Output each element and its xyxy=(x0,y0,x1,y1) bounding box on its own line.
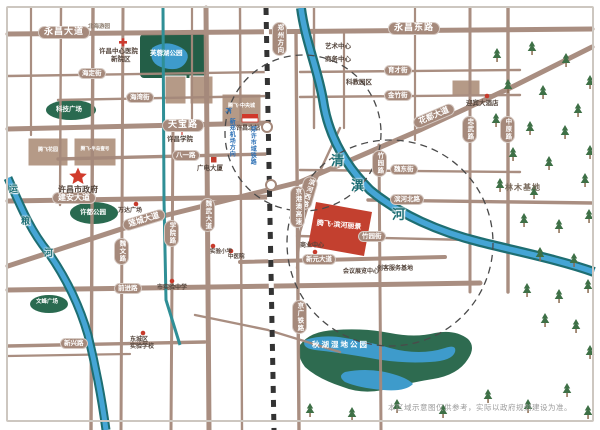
poi-wanda-plaza: 万达广场 xyxy=(118,208,142,214)
road-label-qianjin: 前进路 xyxy=(114,283,142,294)
river-name-west-char1: 运 xyxy=(9,186,18,195)
poi-maker-base: 创客服务基地 xyxy=(377,266,413,272)
park-label-furong-lake: 芙蓉湖公园 xyxy=(150,50,183,57)
road-label-zhuyuan-road: 竹园路 xyxy=(372,150,387,177)
road-label-zhongyuan: 中原路 xyxy=(500,116,515,143)
river-name-west-char2: 粮 xyxy=(21,218,30,227)
road-label-jingguang-railway: 京广铁路 xyxy=(292,300,307,334)
road-label-weiwen: 魏文路 xyxy=(114,238,129,265)
park-label-wenfeng-square: 文峰广场 xyxy=(36,300,58,306)
road-label-tianbao: 天宝路 xyxy=(162,119,204,132)
poi-dot-icon xyxy=(134,202,139,207)
park-label-xudu-park: 许都公园 xyxy=(80,209,106,216)
road-label-haiding: 海定街 xyxy=(78,68,106,79)
road-label-jinggangao-expressway: 京港澳高速 xyxy=(290,186,305,228)
road-label-jinzhu: 金竹街 xyxy=(384,90,412,101)
poi-broadcast-tower: 广电大厦 xyxy=(197,165,223,172)
road-label-haiwan: 海湾街 xyxy=(126,92,154,103)
road-label-xinxing: 新兴路 xyxy=(60,338,88,349)
poi-hospital-line2: 新院区 xyxy=(111,56,131,63)
poi-dot-icon xyxy=(141,331,146,336)
poi-exhibition-center: 会议展览中心 xyxy=(343,269,379,275)
river-name-east-char2: 潩 xyxy=(351,180,364,194)
railway-line xyxy=(266,8,274,430)
star-icon xyxy=(69,168,87,185)
poi-kejiao-park: 科教园区 xyxy=(346,79,372,86)
road-label-xinyuan: 新元大道 xyxy=(302,254,336,265)
poi-hotel: 迎宾大酒店 xyxy=(466,100,499,107)
block-label-tengfei-bandao: 腾飞·半岛壹号 xyxy=(75,148,115,153)
road-label-binhe-north: 滨河北路 xyxy=(390,194,424,205)
road-label-weidong: 魏东街 xyxy=(390,164,418,175)
park-label-keji-square: 科技广场 xyxy=(56,106,82,113)
poi-shopping-center: 商业中心 xyxy=(300,243,324,249)
poi-biz-center: 商务中心 xyxy=(325,56,351,63)
direction-label-zhengzhou: 郑州方向 xyxy=(272,22,287,56)
poi-experimental-middle-school: 市实验中学 xyxy=(157,285,187,291)
river-name-east-char3: 河 xyxy=(392,209,405,223)
poi-dongcheng-school-line2: 实验学校 xyxy=(130,344,154,350)
road-label-zhuyuan-street: 竹园街 xyxy=(358,231,386,242)
poi-xuchang-college: 许昌学院 xyxy=(167,136,193,143)
poi-art-center: 艺术中心 xyxy=(325,43,351,50)
poi-dot-icon xyxy=(170,279,175,284)
poi-north-station: 许昌北站 xyxy=(236,126,260,132)
toll-gate-icon xyxy=(242,114,258,122)
river-name-east-char1: 清 xyxy=(331,155,344,169)
road-label-xueyuan: 学院路 xyxy=(164,220,179,247)
poi-beihai-garden: 北海游园 xyxy=(88,25,110,31)
river-name-west-char3: 河 xyxy=(44,250,53,259)
poi-dot-icon xyxy=(211,244,216,249)
road-label-yucai: 育才街 xyxy=(384,65,412,76)
block-label-tengfei-garden: 腾飞花园 xyxy=(30,148,66,153)
disclaimer-text: 本区域示意图仅供参考，实际以政府规划建设为准。 xyxy=(388,404,572,412)
road-label-bayi: 八一路 xyxy=(172,150,200,161)
transit-label-airport: 新郑机场方向 xyxy=(228,118,234,157)
map-canvas: 永昌大道 永昌东路 海定街 海湾街 育才街 金竹街 天宝路 八一路 魏东街 建安… xyxy=(0,0,600,430)
poi-city-government: 许昌市政府 xyxy=(58,186,98,194)
area-label-forest-base: 林木基地 xyxy=(505,184,541,192)
poi-dot-icon xyxy=(485,94,490,99)
road-label-zhongwu: 忠武路 xyxy=(462,116,477,143)
park-label-qiuhu-wetland: 秋湖湿地公园 xyxy=(312,341,369,349)
tv-tower-icon xyxy=(211,157,217,163)
hospital-cross-icon xyxy=(119,38,127,46)
poi-tcm-hospital: 中医院 xyxy=(228,255,245,261)
road-label-yongchang-avenue: 永昌大道 xyxy=(38,26,90,39)
road-label-weiwu: 魏武大道 xyxy=(200,198,215,232)
poi-hospital-line1: 许昌中心医院 xyxy=(99,48,138,55)
road-label-yongchang-east: 永昌东路 xyxy=(388,22,440,35)
transit-label-metro: 郑许市域铁路 xyxy=(249,126,255,165)
